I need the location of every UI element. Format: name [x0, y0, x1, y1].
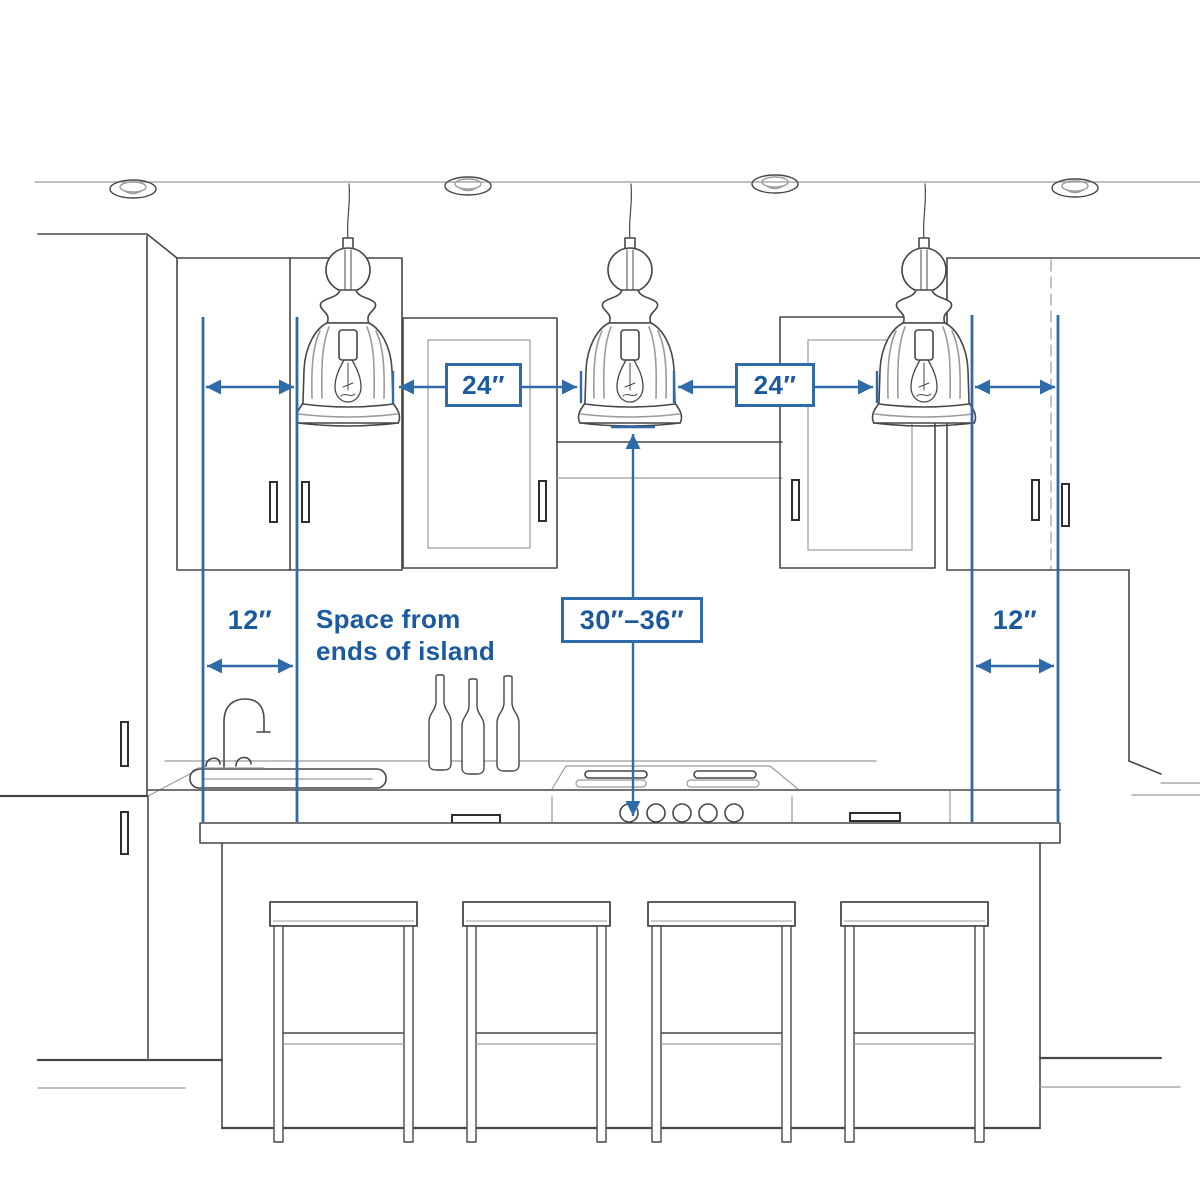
dim-label-12-right: 12″ [972, 605, 1058, 636]
drawer-handle [850, 813, 900, 821]
ceiling [35, 175, 1200, 198]
bottle [497, 676, 519, 771]
cooktop [552, 766, 798, 789]
range-hood-soffit [557, 442, 782, 478]
kitchen-lighting-diagram: 24″ 24″ 30″–36″ 12″ 12″ Space from ends … [0, 0, 1200, 1200]
cabinet-handle [539, 481, 546, 521]
tall-cabinet-left [0, 234, 205, 1058]
wine-bottles [429, 675, 519, 774]
back-counter [148, 761, 1060, 790]
pendant-light-2 [579, 184, 682, 426]
floor-lines [38, 1058, 1180, 1088]
cooktop-knobs [620, 804, 743, 822]
bar-stool-1 [270, 902, 417, 1142]
cabinet-handle [121, 722, 128, 766]
bar-stool-2 [463, 902, 610, 1142]
pendant-light-1 [297, 184, 400, 426]
recessed-light-icon [110, 180, 156, 198]
recessed-light-icon [445, 177, 491, 195]
drawer-handle [452, 815, 500, 823]
dim-label-30-36: 30″–36″ [561, 597, 703, 643]
island-countertop [200, 823, 1060, 843]
recessed-light-icon [752, 175, 798, 193]
cabinet-handle [121, 812, 128, 854]
sink [190, 769, 386, 788]
bottle [462, 679, 484, 774]
dim-label-24-right: 24″ [735, 363, 815, 407]
cabinet-handle [1032, 480, 1039, 520]
dim-label-12-left: 12″ [203, 605, 297, 636]
bar-stool-4 [841, 902, 988, 1142]
cabinet-handle [270, 482, 277, 522]
island-apron [452, 791, 950, 823]
faucet [198, 699, 270, 768]
island-base [222, 843, 1040, 1128]
dim-label-24-left: 24″ [445, 363, 522, 407]
wall-cabinet-right-double [947, 258, 1200, 795]
bottle [429, 675, 451, 770]
pendant-light-3 [873, 184, 976, 426]
note-space-from-ends: Space from ends of island [316, 603, 495, 667]
cabinet-handle [1062, 484, 1069, 526]
cabinet-handle [792, 480, 799, 520]
recessed-light-icon [1052, 179, 1098, 197]
cabinet-handle [302, 482, 309, 522]
bar-stool-3 [648, 902, 795, 1142]
wall-cabinet-left-recessed [403, 318, 557, 568]
